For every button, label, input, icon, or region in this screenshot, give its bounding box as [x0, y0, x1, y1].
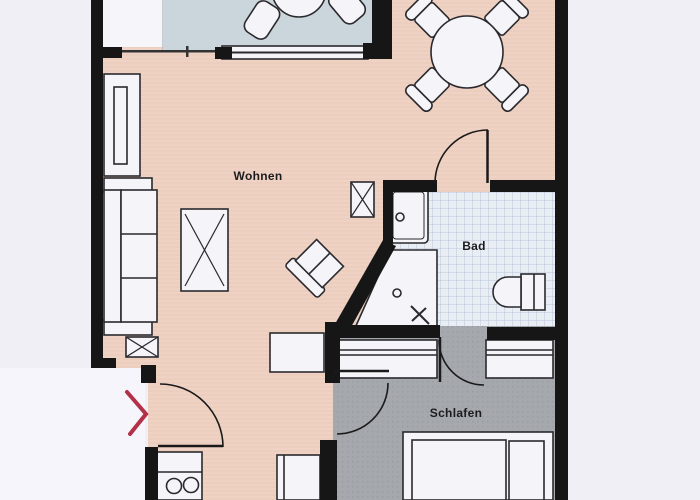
dining-table [431, 16, 503, 88]
balcony-sliding-door [222, 46, 368, 59]
floor-plan-scan: Wohnen Bad Schlafen [0, 0, 700, 500]
room-label-schlafen: Schlafen [430, 406, 482, 420]
side-table [126, 337, 158, 357]
sofa [104, 178, 157, 335]
double-bed [403, 432, 553, 500]
stairwell-area [103, 0, 163, 47]
kitchenette-stove [157, 452, 202, 500]
wall-hall-bedroom-lower [320, 440, 337, 500]
shelf-cabinet [104, 74, 140, 176]
wall-bath-bottom-right [487, 327, 555, 340]
wardrobe-right [486, 340, 553, 378]
wall-balcony-corner [363, 43, 392, 59]
tall-cabinet [277, 455, 320, 500]
exterior-landing [0, 368, 145, 500]
wall-bath-top-right [490, 180, 555, 192]
wall-balcony-left [100, 47, 122, 58]
window-line [122, 50, 215, 53]
wall-entry-stub [95, 358, 116, 368]
wall-bath-left [383, 180, 393, 247]
wall-balcony-right [372, 0, 392, 47]
wall-balcony-mid [215, 47, 232, 59]
window-tick [186, 46, 189, 57]
sideboard [270, 333, 324, 372]
room-label-wohnen: Wohnen [234, 169, 283, 183]
wall-bath-bottom-left [328, 325, 440, 338]
coffee-table [181, 209, 228, 291]
wall-right [555, 0, 568, 500]
wall-entry-corner [141, 365, 156, 383]
washbasin [389, 188, 428, 243]
floor-plan-drawing: Wohnen Bad Schlafen [0, 0, 700, 500]
toilet [493, 274, 545, 310]
wall-below-entry [145, 447, 158, 500]
small-cabinet [351, 182, 374, 217]
wall-hall-bedroom-upper [325, 322, 340, 383]
wardrobe-left [333, 340, 437, 378]
room-label-bad: Bad [462, 239, 486, 253]
